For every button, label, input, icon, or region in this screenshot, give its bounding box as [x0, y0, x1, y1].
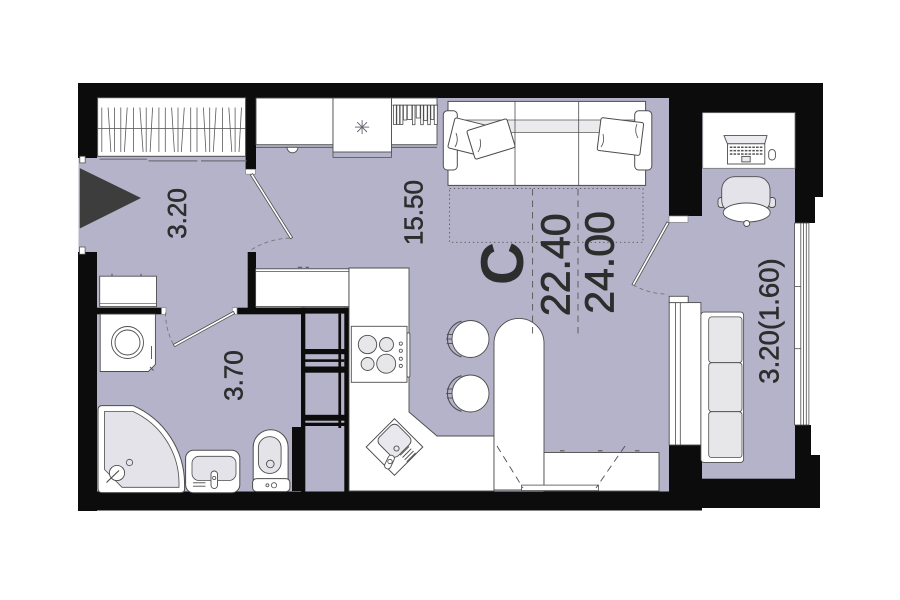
- svg-text:3.20: 3.20: [162, 188, 192, 239]
- svg-text:24.00: 24.00: [576, 211, 622, 314]
- svg-text:C: C: [469, 242, 536, 285]
- svg-text:15.50: 15.50: [399, 180, 429, 245]
- svg-text:3.20(1.60): 3.20(1.60): [754, 258, 785, 383]
- svg-text:3.70: 3.70: [218, 350, 248, 401]
- svg-text:22.40: 22.40: [533, 213, 579, 316]
